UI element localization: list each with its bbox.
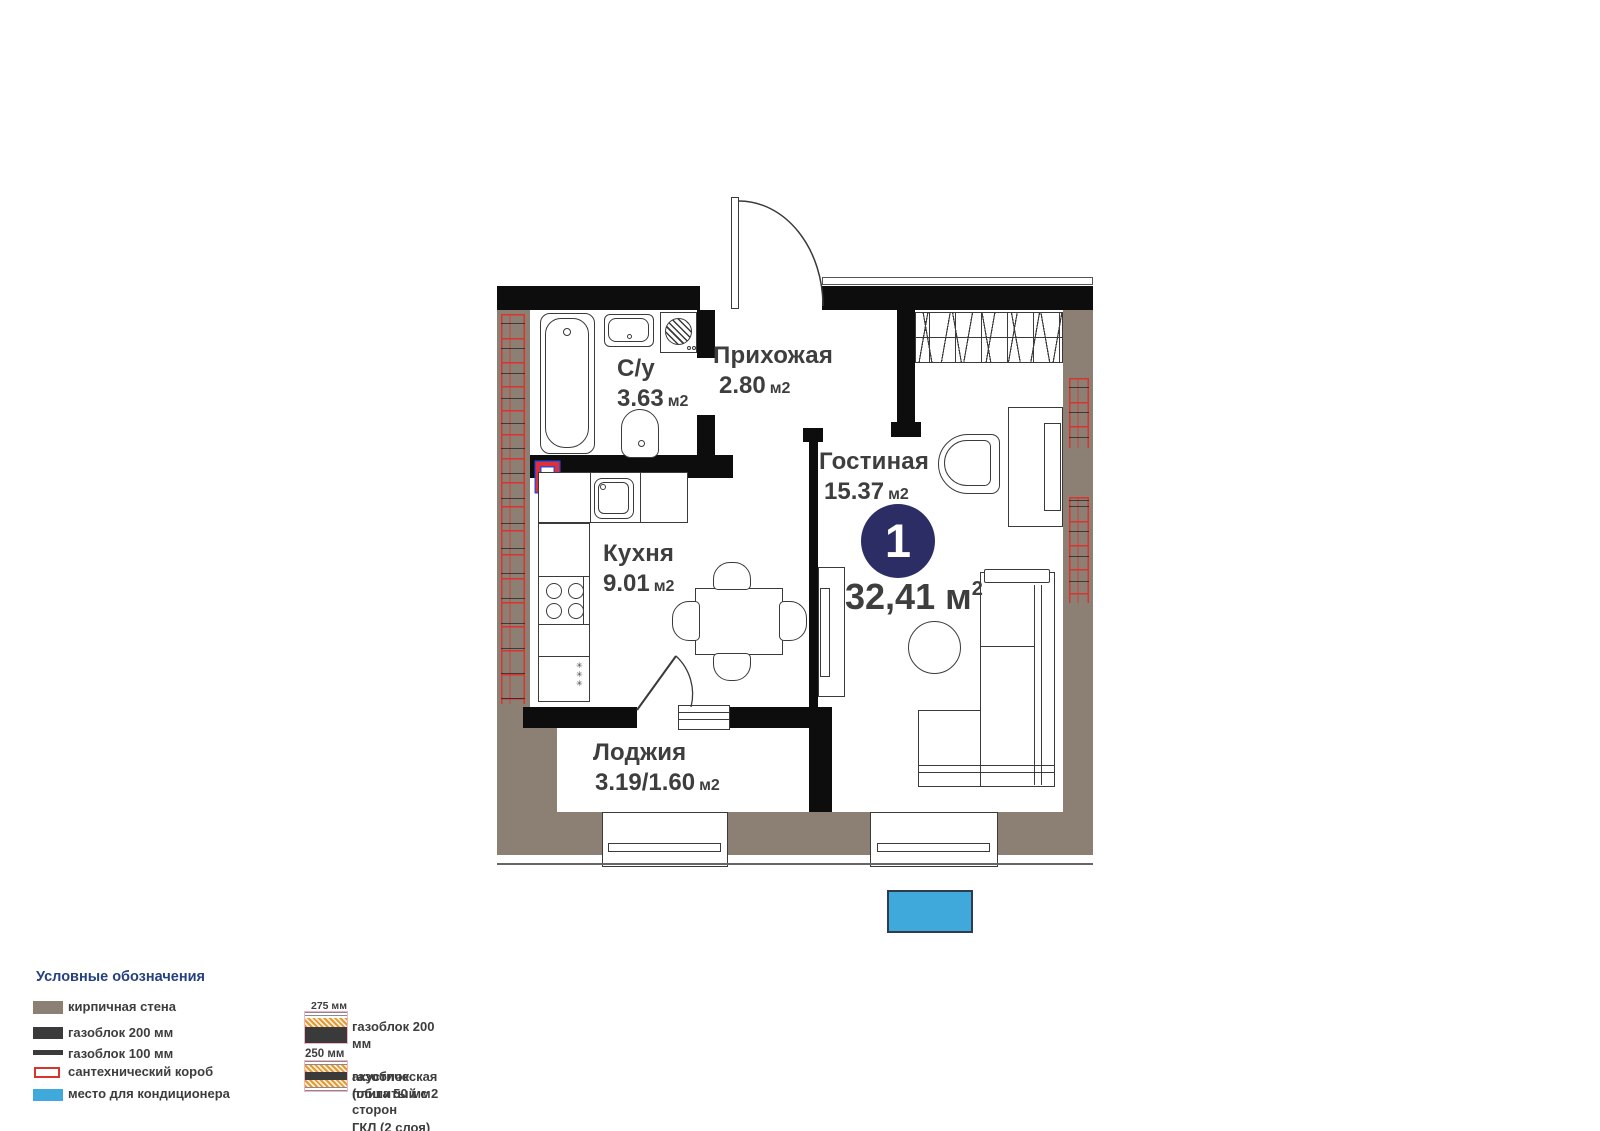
- sanitary-duct-pattern-right-upper: [1069, 378, 1089, 448]
- fridge-marks: ✳ ✳ ✳: [576, 661, 583, 688]
- room-area-hallway: 2.80м2: [719, 372, 790, 400]
- total-area-value: 32,41 м: [845, 576, 972, 617]
- stove-burner: [546, 603, 562, 619]
- room-label-hallway: Прихожая: [713, 342, 833, 370]
- stove-burner: [568, 603, 584, 619]
- stove-panel-line: [583, 577, 584, 624]
- desk-monitor: [1044, 423, 1061, 511]
- wardrobe: [915, 312, 1063, 363]
- bathtub: [540, 313, 595, 454]
- wall-kitchen-cap: [803, 428, 823, 442]
- bathtub-drain: [563, 328, 571, 336]
- room-label-bathroom: С/у: [617, 355, 655, 383]
- counter-divider: [590, 473, 591, 522]
- counter-divider: [640, 473, 641, 522]
- area-value: 3.19/1.60: [595, 769, 695, 796]
- window-sill-line: [679, 719, 729, 720]
- wall-bottom-brick: [497, 812, 1093, 855]
- dining-chair-left: [672, 601, 700, 641]
- washer-knob: [692, 346, 696, 350]
- legend-title: Условные обозначения: [36, 969, 205, 985]
- coffee-table: [908, 621, 961, 674]
- sofa-section-vertical: [980, 572, 1055, 787]
- bathtub-inner: [545, 318, 589, 448]
- loggia-balcony-window: [678, 705, 730, 730]
- legend-swatch-ac-place: [33, 1089, 63, 1101]
- washing-machine: [660, 312, 697, 353]
- gasblock-layer: [305, 1027, 347, 1043]
- legend-swatch-brick: [33, 1001, 63, 1014]
- acoustic-layer: [305, 1065, 347, 1072]
- room-label-loggia: Лоджия: [593, 739, 686, 767]
- cabinet-divider: [539, 624, 589, 625]
- room-label-living: Гостиная: [819, 448, 929, 476]
- gkl-layer: [305, 1087, 347, 1091]
- wall-type-250-swatch: [305, 1061, 347, 1091]
- sanitary-duct-pattern-left: [501, 314, 525, 704]
- room-area-kitchen: 9.01м2: [603, 570, 674, 598]
- entry-door-leaf: [731, 197, 739, 309]
- area-value: 2.80: [719, 372, 766, 399]
- wall-loggia-top-right: [728, 707, 832, 728]
- wall-type-250-dimension: 250 мм: [305, 1048, 344, 1060]
- wall-type-line: газоблок (обшитый с 2 сторон: [352, 1069, 438, 1119]
- washing-machine-drum: [665, 318, 692, 345]
- wall-type-275-dimension: 275 мм: [311, 1000, 347, 1012]
- legend-swatch-gasblock-200: [33, 1027, 63, 1039]
- wall-type-250-text: газоблок (обшитый с 2 сторон акустическо…: [352, 1052, 438, 1131]
- balcony-slab-line: [822, 277, 1093, 285]
- sofa-back-line: [1041, 585, 1042, 785]
- room-area-loggia: 3.19/1.60м2: [595, 769, 720, 797]
- wall-top-right: [822, 286, 1093, 310]
- wall-kitchen-living: [809, 442, 818, 708]
- floor-plan-page: ✳ ✳ ✳ С/у 3.63м2 Прихожая 2.80м2 Гостина…: [0, 0, 1600, 1131]
- acoustic-layer: [305, 1018, 347, 1027]
- room-label-kitchen: Кухня: [603, 540, 674, 568]
- window-sill: [608, 843, 721, 852]
- cabinet-divider: [539, 656, 589, 657]
- area-unit: м2: [668, 393, 689, 410]
- room-area-bathroom: 3.63м2: [617, 385, 688, 413]
- area-unit: м2: [654, 578, 675, 595]
- ac-place-marker: [887, 890, 973, 933]
- sofa-bottom-line: [919, 765, 1054, 766]
- area-value: 15.37: [824, 478, 884, 505]
- area-unit: м2: [770, 380, 791, 397]
- legend-label-gasblock-200: газоблок 200 мм: [68, 1025, 173, 1040]
- legend-label-ac-place: место для кондиционера: [68, 1086, 230, 1101]
- wall-loggia-top-left: [523, 707, 637, 728]
- cabinet-divider: [539, 576, 589, 577]
- wall-type-line: газоблок 200 мм: [352, 1019, 437, 1053]
- area-value: 3.63: [617, 385, 664, 412]
- area-value: 9.01: [603, 570, 650, 597]
- legend-label-brick: кирпичная стена: [68, 999, 176, 1014]
- sofa-bottom-line: [919, 772, 1054, 773]
- window-sill-line: [679, 712, 729, 713]
- dining-chair-bottom: [713, 653, 751, 681]
- tv-unit-inner: [820, 588, 830, 677]
- kitchen-faucet-dot: [600, 484, 606, 490]
- wall-hallway: [897, 310, 915, 428]
- bathroom-sink: [604, 314, 654, 347]
- dining-chair-top: [713, 562, 751, 590]
- dining-chair-right: [779, 601, 807, 641]
- room-area-living: 15.37м2: [824, 478, 909, 506]
- wall-hallway-cap: [891, 422, 921, 437]
- wardrobe-rod-line: [916, 337, 1062, 338]
- unit-number: 1: [885, 514, 911, 567]
- wall-type-275-swatch: [305, 1012, 347, 1043]
- legend-label-gasblock-100: газоблок 100 мм: [68, 1046, 173, 1061]
- desk-chair-inner: [944, 440, 991, 486]
- total-area: 32,41 м2: [845, 576, 983, 618]
- stove-burner: [568, 583, 584, 599]
- total-area-sup: 2: [972, 578, 983, 600]
- desk-chair: [938, 434, 1000, 494]
- washer-knob: [687, 346, 691, 350]
- legend-label-sanitary-box: сантехнический короб: [68, 1064, 213, 1079]
- bottom-window-living: [870, 812, 998, 867]
- dining-table: [695, 588, 783, 655]
- gasblock-layer: [305, 1072, 347, 1080]
- area-unit: м2: [699, 777, 720, 794]
- window-sill: [877, 843, 990, 852]
- wall-top-left: [497, 286, 700, 310]
- sofa-seat-divider: [981, 646, 1035, 647]
- area-unit: м2: [888, 486, 909, 503]
- ground-line: [497, 863, 1093, 865]
- sink-faucet-dot: [627, 334, 632, 339]
- unit-number-badge: 1: [861, 504, 935, 578]
- toilet-drain: [638, 440, 645, 447]
- sofa-back-line: [1034, 585, 1035, 785]
- acoustic-layer: [305, 1080, 347, 1087]
- sofa-armrest: [984, 569, 1050, 583]
- door-arcs: [0, 0, 1600, 1131]
- sanitary-duct-pattern-right-lower: [1069, 497, 1089, 603]
- stove-burner: [546, 583, 562, 599]
- kitchen-cabinet-column: ✳ ✳ ✳: [538, 523, 590, 702]
- bottom-window-loggia: [602, 812, 728, 867]
- legend-swatch-gasblock-100: [33, 1050, 63, 1055]
- legend-swatch-sanitary-box: [34, 1067, 60, 1078]
- kitchen-sink: [594, 478, 634, 519]
- toilet: [621, 409, 659, 458]
